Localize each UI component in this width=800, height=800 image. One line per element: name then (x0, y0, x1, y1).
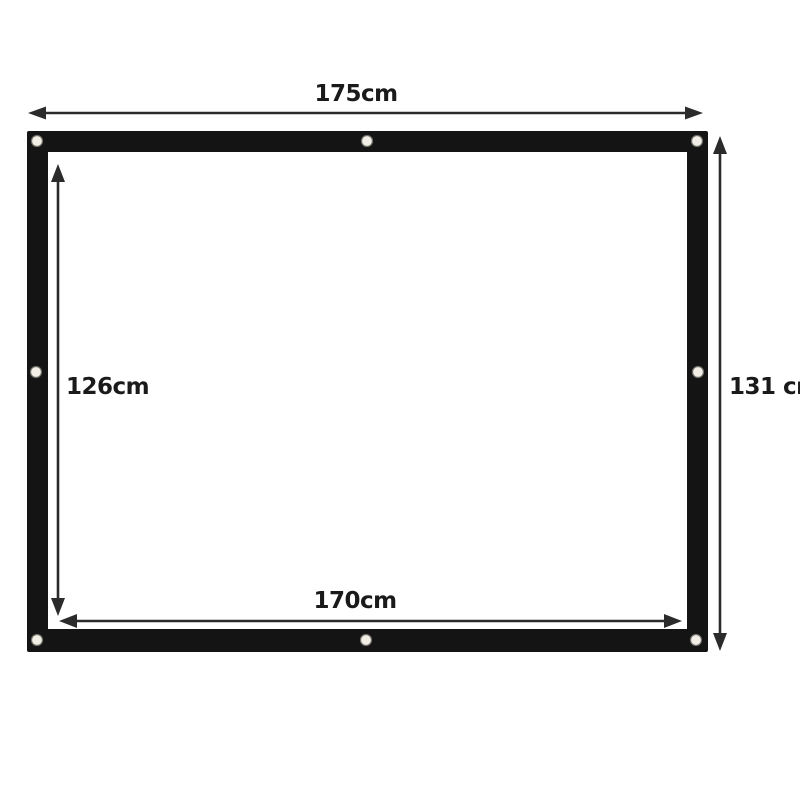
grommet-top-left (32, 136, 43, 147)
grommet-top-right (692, 136, 703, 147)
grommet-middle-left (31, 367, 42, 378)
grommet-bottom-center (361, 635, 372, 646)
outer-height-dimension: 131 cm (713, 136, 800, 651)
grommet-bottom-left (32, 635, 43, 646)
arrowhead-right-icon (685, 107, 703, 120)
product-dimension-diagram: 175cm 131 cm 126cm 170cm (0, 0, 800, 800)
arrowhead-left-icon (28, 107, 46, 120)
grommet-middle-right (693, 367, 704, 378)
grommet-bottom-right (691, 635, 702, 646)
arrowhead-up-icon (713, 136, 727, 154)
arrowhead-down-icon (713, 633, 727, 651)
diagram-svg: 175cm 131 cm 126cm 170cm (0, 0, 800, 800)
outer-width-label: 175cm (314, 81, 397, 107)
inner-height-label: 126cm (66, 374, 149, 400)
outer-height-label: 131 cm (729, 374, 800, 400)
inner-width-label: 170cm (313, 588, 396, 614)
grommet-top-center (362, 136, 373, 147)
outer-width-dimension: 175cm (28, 81, 703, 120)
